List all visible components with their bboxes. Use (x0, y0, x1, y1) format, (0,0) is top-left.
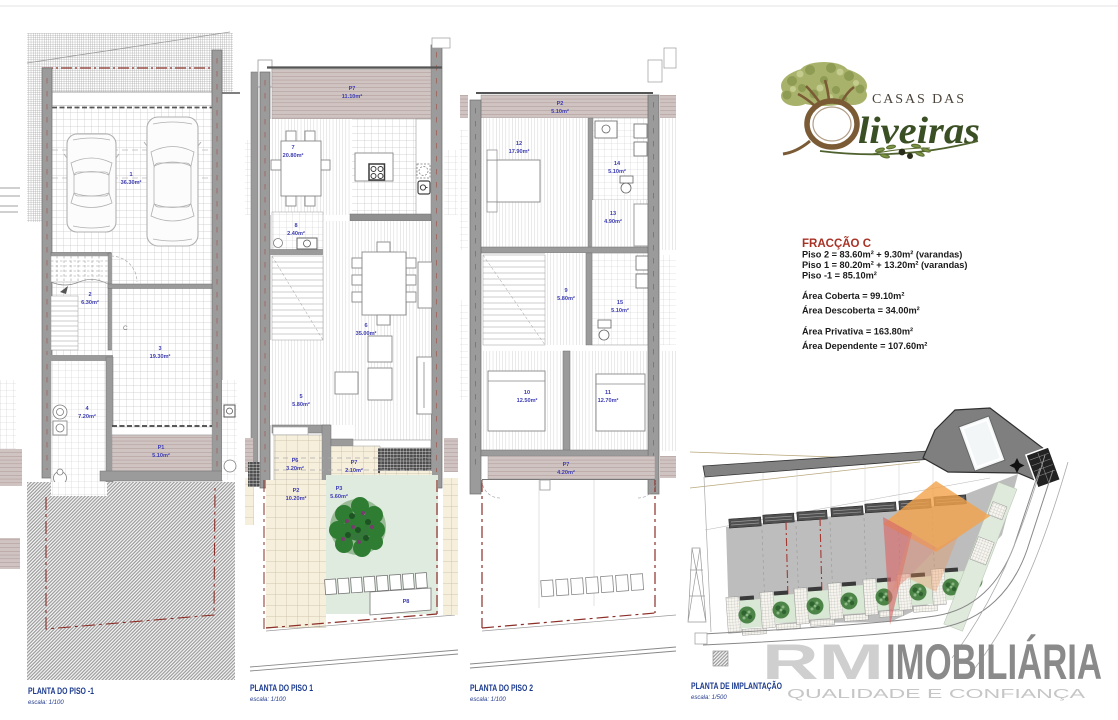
svg-text:11: 11 (605, 390, 611, 396)
svg-text:10: 10 (524, 390, 530, 396)
svg-text:P1: P1 (158, 445, 165, 451)
svg-text:2: 2 (88, 292, 91, 298)
svg-text:9: 9 (564, 288, 567, 294)
svg-text:36.30m²: 36.30m² (121, 179, 142, 186)
svg-text:6.30m²: 6.30m² (81, 299, 99, 306)
svg-text:5: 5 (299, 394, 302, 400)
svg-text:20.80m²: 20.80m² (283, 152, 304, 159)
svg-text:P7: P7 (349, 86, 356, 92)
svg-text:P2: P2 (293, 488, 300, 494)
svg-text:13: 13 (610, 211, 616, 217)
svg-text:Piso 1 = 80.20m² + 13.20m² (va: Piso 1 = 80.20m² + 13.20m² (varandas) (802, 260, 967, 270)
svg-text:14: 14 (614, 161, 621, 167)
svg-text:escala: 1/100: escala: 1/100 (250, 697, 286, 703)
svg-text:2.40m²: 2.40m² (287, 230, 305, 237)
svg-text:FRACÇÃO C: FRACÇÃO C (802, 237, 871, 250)
svg-text:PLANTA DO PISO -1: PLANTA DO PISO -1 (28, 686, 94, 696)
svg-text:Piso 2 = 83.60m² + 9.30m² (var: Piso 2 = 83.60m² + 9.30m² (varandas) (802, 250, 962, 260)
svg-text:12: 12 (516, 141, 522, 147)
svg-text:6: 6 (364, 323, 367, 329)
svg-text:11.10m²: 11.10m² (342, 93, 363, 100)
svg-text:4.20m²: 4.20m² (557, 469, 575, 476)
svg-text:P2: P2 (557, 101, 564, 107)
svg-text:Área Privativa = 163.80m²: Área Privativa = 163.80m² (802, 326, 913, 337)
svg-text:3.20m²: 3.20m² (286, 465, 304, 472)
svg-text:P7: P7 (351, 460, 358, 466)
svg-text:15: 15 (617, 300, 623, 306)
svg-text:P6: P6 (292, 458, 299, 464)
svg-text:PLANTA DO PISO 2: PLANTA DO PISO 2 (470, 683, 533, 693)
svg-text:P8: P8 (403, 599, 410, 605)
svg-text:4.90m²: 4.90m² (604, 218, 622, 225)
svg-text:2.10m²: 2.10m² (345, 467, 363, 474)
svg-text:escala: 1/100: escala: 1/100 (28, 700, 64, 706)
svg-text:Piso -1 = 85.10m²: Piso -1 = 85.10m² (802, 271, 877, 281)
svg-text:12.50m²: 12.50m² (517, 397, 538, 404)
svg-text:19.30m²: 19.30m² (150, 353, 171, 360)
svg-text:1: 1 (129, 172, 132, 178)
svg-text:5.10m²: 5.10m² (608, 168, 626, 175)
svg-text:P7: P7 (563, 462, 570, 468)
svg-text:3: 3 (158, 346, 161, 352)
svg-text:escala: 1/500: escala: 1/500 (691, 695, 727, 701)
svg-text:8: 8 (294, 223, 297, 229)
svg-text:Área Dependente = 107.60m²: Área Dependente = 107.60m² (802, 340, 927, 351)
svg-text:PLANTA DO PISO 1: PLANTA DO PISO 1 (250, 683, 313, 693)
svg-text:7: 7 (291, 145, 294, 151)
svg-text:QUALIDADE E CONFIANÇA: QUALIDADE E CONFIANÇA (787, 686, 1086, 701)
svg-text:Área Descoberta = 34.00m²: Área Descoberta = 34.00m² (802, 305, 920, 316)
svg-text:10.20m²: 10.20m² (286, 495, 307, 502)
svg-text:Área Coberta = 99.10m²: Área Coberta = 99.10m² (802, 290, 904, 301)
svg-text:7.20m²: 7.20m² (78, 413, 96, 420)
svg-text:5.60m²: 5.60m² (330, 493, 348, 500)
svg-text:PLANTA DE IMPLANTAÇÃO: PLANTA DE IMPLANTAÇÃO (691, 681, 782, 691)
svg-text:5.10m²: 5.10m² (611, 307, 629, 314)
svg-text:5.10m²: 5.10m² (551, 108, 569, 115)
svg-text:12.70m²: 12.70m² (598, 397, 619, 404)
svg-text:5.80m²: 5.80m² (557, 295, 575, 302)
svg-text:35.00m²: 35.00m² (356, 330, 377, 337)
svg-text:CASAS DAS: CASAS DAS (872, 92, 966, 107)
svg-text:C: C (123, 325, 128, 332)
svg-text:5.80m²: 5.80m² (292, 401, 310, 408)
svg-text:17.90m²: 17.90m² (509, 148, 530, 155)
svg-text:P3: P3 (336, 486, 343, 492)
svg-text:escala: 1/100: escala: 1/100 (470, 697, 506, 703)
svg-text:IMOBILIÁRIA: IMOBILIÁRIA (886, 634, 1102, 690)
svg-text:5.10m²: 5.10m² (152, 452, 170, 459)
